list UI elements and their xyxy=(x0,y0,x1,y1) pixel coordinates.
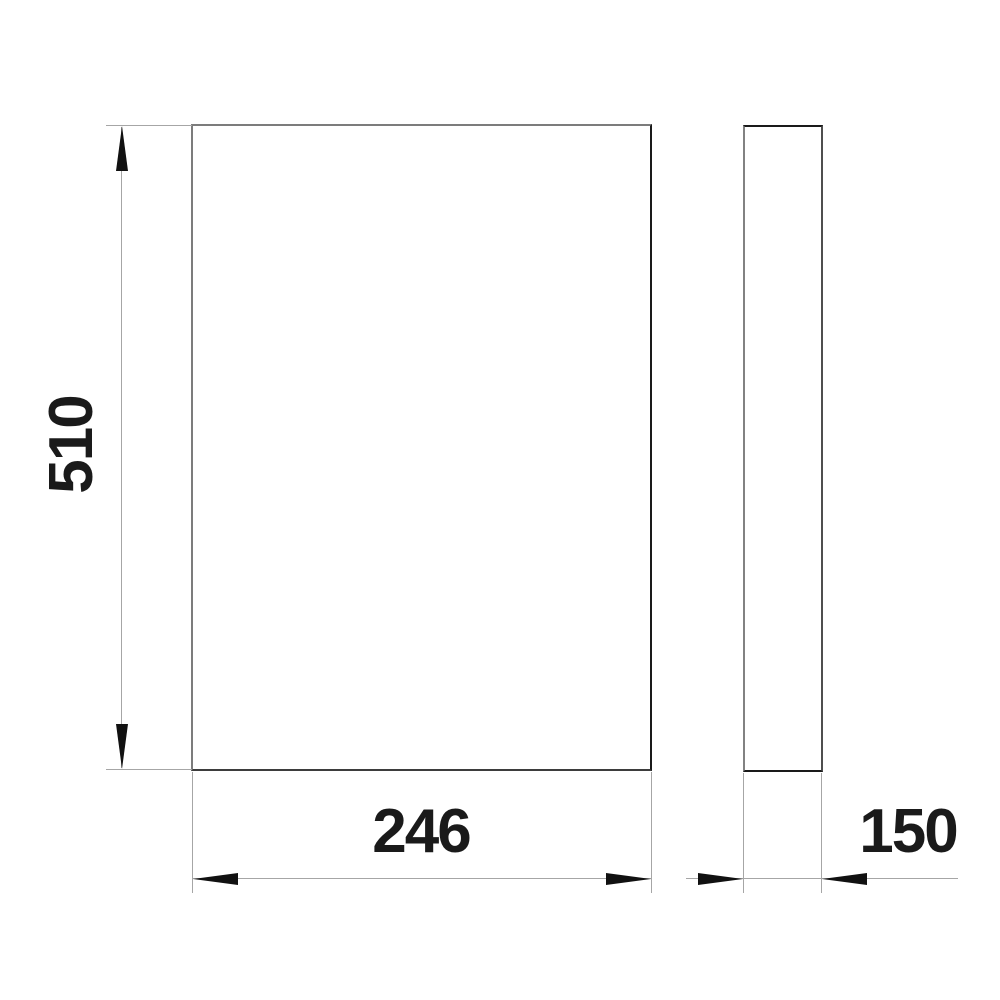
depth-extension-line-left xyxy=(743,773,744,893)
front-view-outline xyxy=(191,124,652,771)
arrow-right-icon xyxy=(606,873,651,885)
depth-dimension-label: 150 xyxy=(833,801,983,863)
arrow-left-icon xyxy=(193,873,238,885)
arrow-left-icon xyxy=(822,873,867,885)
height-dimension-label: 510 xyxy=(41,370,103,520)
arrow-up-icon xyxy=(116,126,128,171)
height-extension-line-bottom xyxy=(106,769,192,770)
arrow-right-icon xyxy=(698,873,743,885)
drawing-canvas: 510 246 150 xyxy=(0,0,1000,1000)
width-dimension-line xyxy=(193,878,651,879)
arrow-down-icon xyxy=(116,724,128,769)
width-extension-line-right xyxy=(651,772,652,893)
side-view-outline xyxy=(743,125,823,772)
height-dimension-line xyxy=(121,127,122,768)
width-dimension-label: 246 xyxy=(346,801,496,863)
